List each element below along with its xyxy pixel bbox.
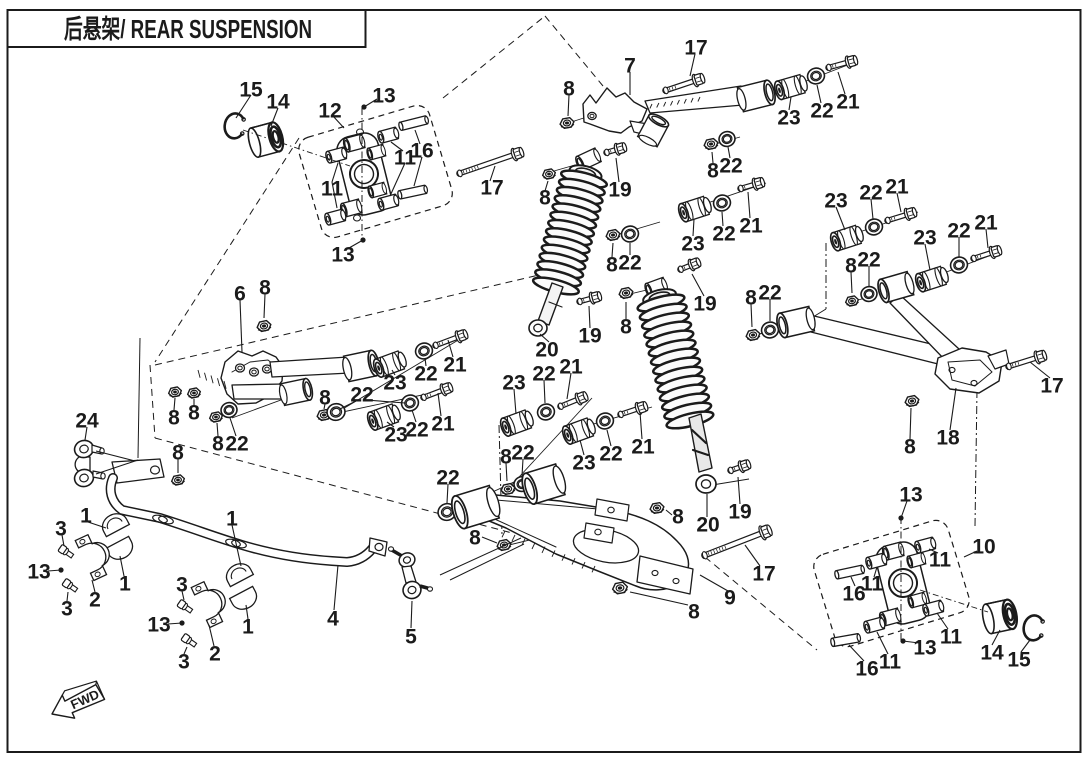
svg-text:15: 15 (1007, 649, 1031, 672)
svg-text:8: 8 (259, 277, 271, 300)
svg-text:9: 9 (724, 587, 736, 610)
svg-text:16: 16 (410, 140, 433, 163)
svg-text:8: 8 (212, 433, 224, 456)
svg-text:3: 3 (178, 651, 190, 674)
svg-text:17: 17 (480, 177, 503, 200)
svg-text:1: 1 (119, 573, 131, 596)
svg-text:21: 21 (974, 212, 998, 235)
svg-text:8: 8 (168, 407, 180, 430)
svg-text:2: 2 (89, 589, 101, 612)
svg-text:21: 21 (739, 215, 763, 238)
svg-text:14: 14 (980, 642, 1004, 665)
svg-text:5: 5 (405, 626, 417, 649)
svg-text:22: 22 (532, 363, 555, 386)
svg-text:13: 13 (331, 244, 354, 267)
svg-text:23: 23 (502, 372, 525, 395)
svg-text:13: 13 (147, 614, 170, 637)
svg-text:3: 3 (55, 518, 67, 541)
svg-text:8: 8 (707, 160, 719, 183)
svg-text:4: 4 (327, 608, 339, 631)
svg-text:22: 22 (947, 220, 970, 243)
svg-text:8: 8 (606, 254, 618, 277)
svg-text:23: 23 (824, 190, 847, 213)
svg-text:8: 8 (688, 601, 700, 624)
svg-text:11: 11 (321, 178, 344, 201)
svg-text:13: 13 (913, 637, 936, 660)
svg-text:21: 21 (431, 413, 455, 436)
svg-text:23: 23 (777, 107, 800, 130)
svg-text:22: 22 (758, 282, 781, 305)
svg-text:15: 15 (239, 79, 263, 102)
svg-text:23: 23 (913, 227, 936, 250)
svg-text:22: 22 (350, 384, 373, 407)
svg-text:22: 22 (225, 433, 248, 456)
svg-text:8: 8 (672, 506, 684, 529)
svg-text:21: 21 (443, 354, 467, 377)
svg-text:1: 1 (242, 616, 254, 639)
svg-text:22: 22 (405, 419, 428, 442)
svg-text:18: 18 (936, 427, 960, 450)
svg-text:19: 19 (608, 179, 631, 202)
svg-text:16: 16 (855, 658, 878, 681)
svg-text:3: 3 (176, 574, 188, 597)
svg-text:23: 23 (384, 424, 407, 447)
svg-text:22: 22 (436, 467, 459, 490)
svg-text:22: 22 (618, 252, 641, 275)
svg-text:后悬架/ REAR SUSPENSION: 后悬架/ REAR SUSPENSION (64, 14, 312, 44)
svg-text:8: 8 (904, 436, 916, 459)
svg-text:21: 21 (559, 356, 583, 379)
svg-text:16: 16 (842, 583, 865, 606)
svg-text:10: 10 (972, 536, 995, 559)
svg-text:8: 8 (620, 316, 632, 339)
svg-text:22: 22 (712, 223, 735, 246)
svg-text:8: 8 (745, 287, 757, 310)
svg-text:21: 21 (631, 436, 655, 459)
svg-text:22: 22 (719, 155, 742, 178)
svg-text:8: 8 (172, 442, 184, 465)
svg-text:19: 19 (578, 325, 601, 348)
svg-text:20: 20 (535, 339, 558, 362)
svg-text:22: 22 (857, 249, 880, 272)
svg-text:22: 22 (414, 363, 437, 386)
svg-text:8: 8 (539, 187, 551, 210)
svg-text:24: 24 (75, 410, 99, 433)
svg-text:6: 6 (234, 283, 246, 306)
svg-text:21: 21 (836, 91, 860, 114)
svg-text:8: 8 (845, 255, 857, 278)
svg-text:22: 22 (599, 443, 622, 466)
svg-text:20: 20 (696, 514, 719, 537)
svg-text:17: 17 (684, 37, 707, 60)
svg-text:8: 8 (188, 402, 200, 425)
svg-text:23: 23 (572, 452, 595, 475)
svg-text:2: 2 (209, 643, 221, 666)
svg-text:17: 17 (752, 563, 775, 586)
svg-text:19: 19 (693, 293, 716, 316)
svg-text:23: 23 (681, 233, 704, 256)
svg-text:13: 13 (899, 484, 922, 507)
svg-text:1: 1 (226, 508, 238, 531)
svg-text:8: 8 (469, 527, 481, 550)
svg-text:11: 11 (929, 549, 952, 572)
svg-text:8: 8 (563, 78, 575, 101)
svg-text:22: 22 (859, 182, 882, 205)
svg-text:14: 14 (266, 91, 290, 114)
svg-text:12: 12 (318, 100, 341, 123)
svg-text:13: 13 (27, 561, 50, 584)
svg-text:3: 3 (61, 598, 73, 621)
svg-text:11: 11 (940, 626, 963, 649)
svg-text:11: 11 (879, 651, 902, 674)
svg-text:13: 13 (372, 85, 395, 108)
svg-text:22: 22 (511, 442, 534, 465)
svg-text:21: 21 (885, 176, 909, 199)
svg-text:8: 8 (319, 387, 331, 410)
svg-text:7: 7 (624, 55, 636, 78)
svg-text:1: 1 (80, 505, 92, 528)
svg-text:23: 23 (383, 372, 406, 395)
svg-text:19: 19 (728, 501, 751, 524)
svg-text:17: 17 (1040, 375, 1063, 398)
svg-text:22: 22 (810, 100, 833, 123)
